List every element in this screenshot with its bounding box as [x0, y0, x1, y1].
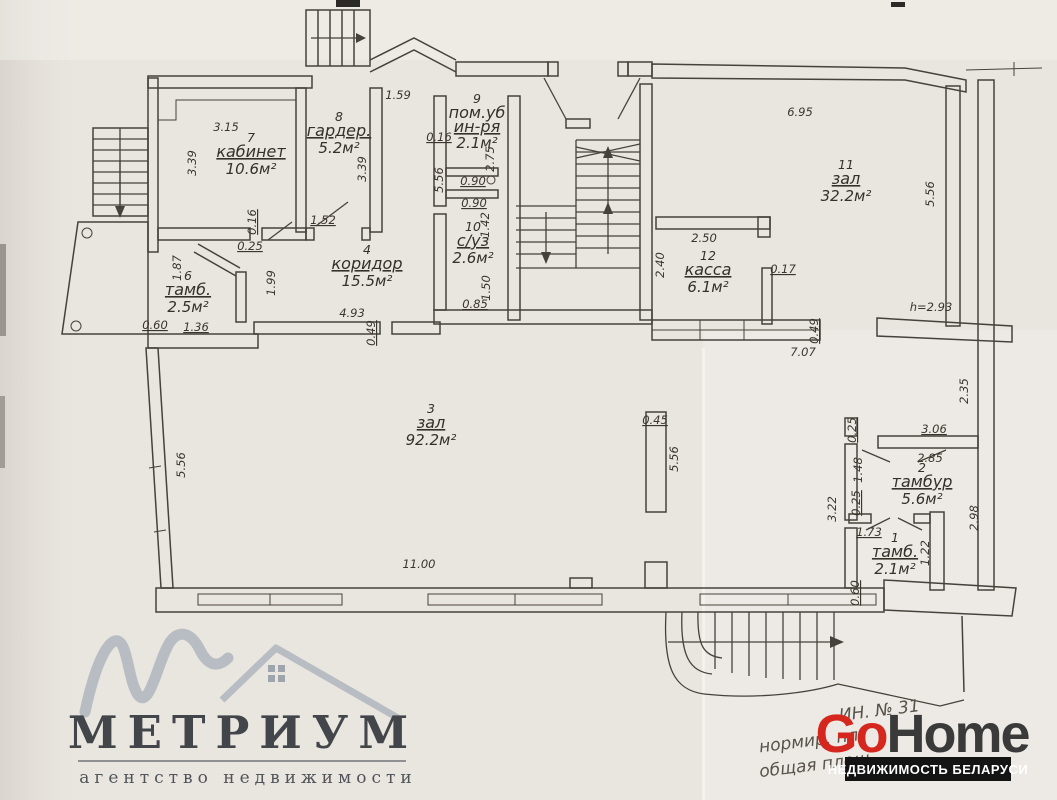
dimension-label: 0.60: [142, 318, 168, 332]
dimension-label: 0.60: [848, 580, 862, 606]
dimension-label: 11.00: [403, 557, 436, 571]
dimension-label: 2.98: [967, 505, 981, 531]
dimension-label: 1.59: [385, 88, 411, 102]
dimension-label: 0.16: [426, 130, 452, 144]
dimension-label: 5.56: [432, 167, 446, 193]
dimension-label: 0.90: [460, 174, 486, 188]
dimension-label: 3.39: [355, 156, 369, 182]
dimension-label: 0.49: [364, 320, 378, 346]
room-name: тамб.: [165, 280, 211, 299]
room-name: касса: [685, 260, 732, 279]
room-area: 2.6м²: [452, 249, 493, 267]
dimension-label: 0.16: [245, 209, 259, 235]
dimension-label: 5.56: [923, 181, 937, 207]
dimension-label: 3.39: [185, 150, 199, 176]
dimension-label: 0.25: [237, 239, 263, 253]
dimension-label: 3.06: [921, 422, 947, 436]
room-name: кабинет: [216, 142, 286, 161]
dimension-label: 0.90: [461, 196, 487, 210]
gohome-banner-text: НЕДВИЖИМОСТЬ БЕЛАРУСИ: [828, 762, 1028, 777]
metrium-title: МЕТРИУМ: [68, 706, 418, 759]
room-name: коридор: [331, 254, 402, 273]
room-area: 2.1м²: [874, 560, 915, 578]
dimension-label: 5.56: [667, 446, 681, 472]
gohome-logo: GoHome: [815, 704, 1029, 764]
dimension-label: 3.22: [825, 496, 839, 522]
room-area: 5.6м²: [901, 490, 942, 508]
gohome-home: Home: [886, 704, 1029, 764]
dimension-label: 0.25: [845, 417, 859, 443]
room-area: 10.6м²: [226, 160, 277, 178]
room-name: зал: [417, 413, 446, 432]
dimension-label: 1.36: [183, 320, 209, 334]
room-area: 5.2м²: [318, 139, 359, 157]
room-area: 32.2м²: [821, 187, 872, 205]
dimension-label: 2.35: [957, 378, 971, 404]
dimension-label: 6.95: [787, 105, 813, 119]
dimension-label: 1.48: [851, 457, 865, 483]
room-name: тамб.: [872, 542, 918, 561]
dimension-label: 5.56: [174, 452, 188, 478]
dimension-label: 0.85: [462, 297, 488, 311]
room-name: с/уз: [457, 231, 489, 250]
gohome-go: Go: [815, 704, 886, 764]
floor-plan-scan: 1.593.153.393.391.520.160.251.871.994.93…: [0, 0, 1057, 800]
dimension-label: 0.45: [642, 413, 668, 427]
room-area: 15.5м²: [342, 272, 393, 290]
dimension-label: 0.49: [807, 318, 821, 344]
room-name: зал: [832, 169, 861, 188]
dimension-label: 2.50: [691, 231, 717, 245]
dimension-label: 1.99: [264, 270, 278, 296]
watermark-gohome: GoHome НЕДВИЖИМОСТЬ БЕЛАРУСИ: [815, 704, 1029, 781]
dimension-label: 2.40: [653, 252, 667, 278]
metrium-tagline: агентство недвижимости: [79, 768, 416, 788]
dimension-label: 1.73: [856, 525, 882, 539]
room-area: 6.1м²: [687, 278, 728, 296]
room-name: тамбур: [892, 472, 953, 491]
dimension-label: 1.22: [918, 540, 932, 566]
floor-plan-svg: 1.593.153.393.391.520.160.251.871.994.93…: [0, 0, 1057, 800]
room-name: гардер.: [307, 121, 372, 140]
dimension-label: 1.87: [170, 255, 184, 281]
dimension-label: h=2.93: [910, 300, 953, 314]
room-area: 92.2м²: [406, 431, 457, 449]
dimension-label: 3.15: [213, 120, 239, 134]
room-area: 2.1м²: [456, 134, 497, 152]
dimension-label: 4.93: [339, 306, 365, 320]
dimension-label: 0.17: [770, 262, 796, 276]
dimension-label: 0.25: [849, 490, 863, 516]
dimension-label: 1.52: [310, 213, 336, 227]
dimension-label: 7.07: [790, 345, 816, 359]
room-area: 2.5м²: [167, 298, 208, 316]
